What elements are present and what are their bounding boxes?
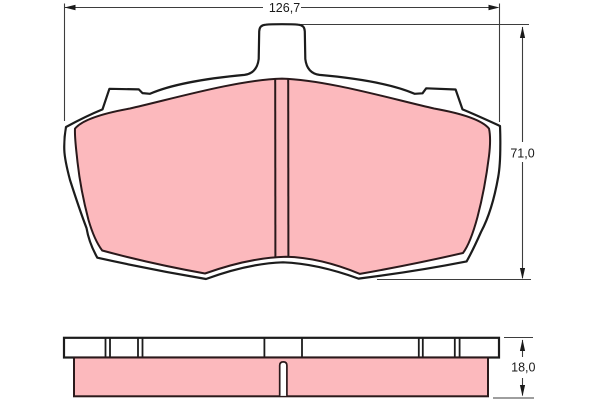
svg-text:71,0: 71,0 [510,147,534,161]
svg-text:18,0: 18,0 [511,361,535,375]
svg-text:126,7: 126,7 [269,1,300,15]
